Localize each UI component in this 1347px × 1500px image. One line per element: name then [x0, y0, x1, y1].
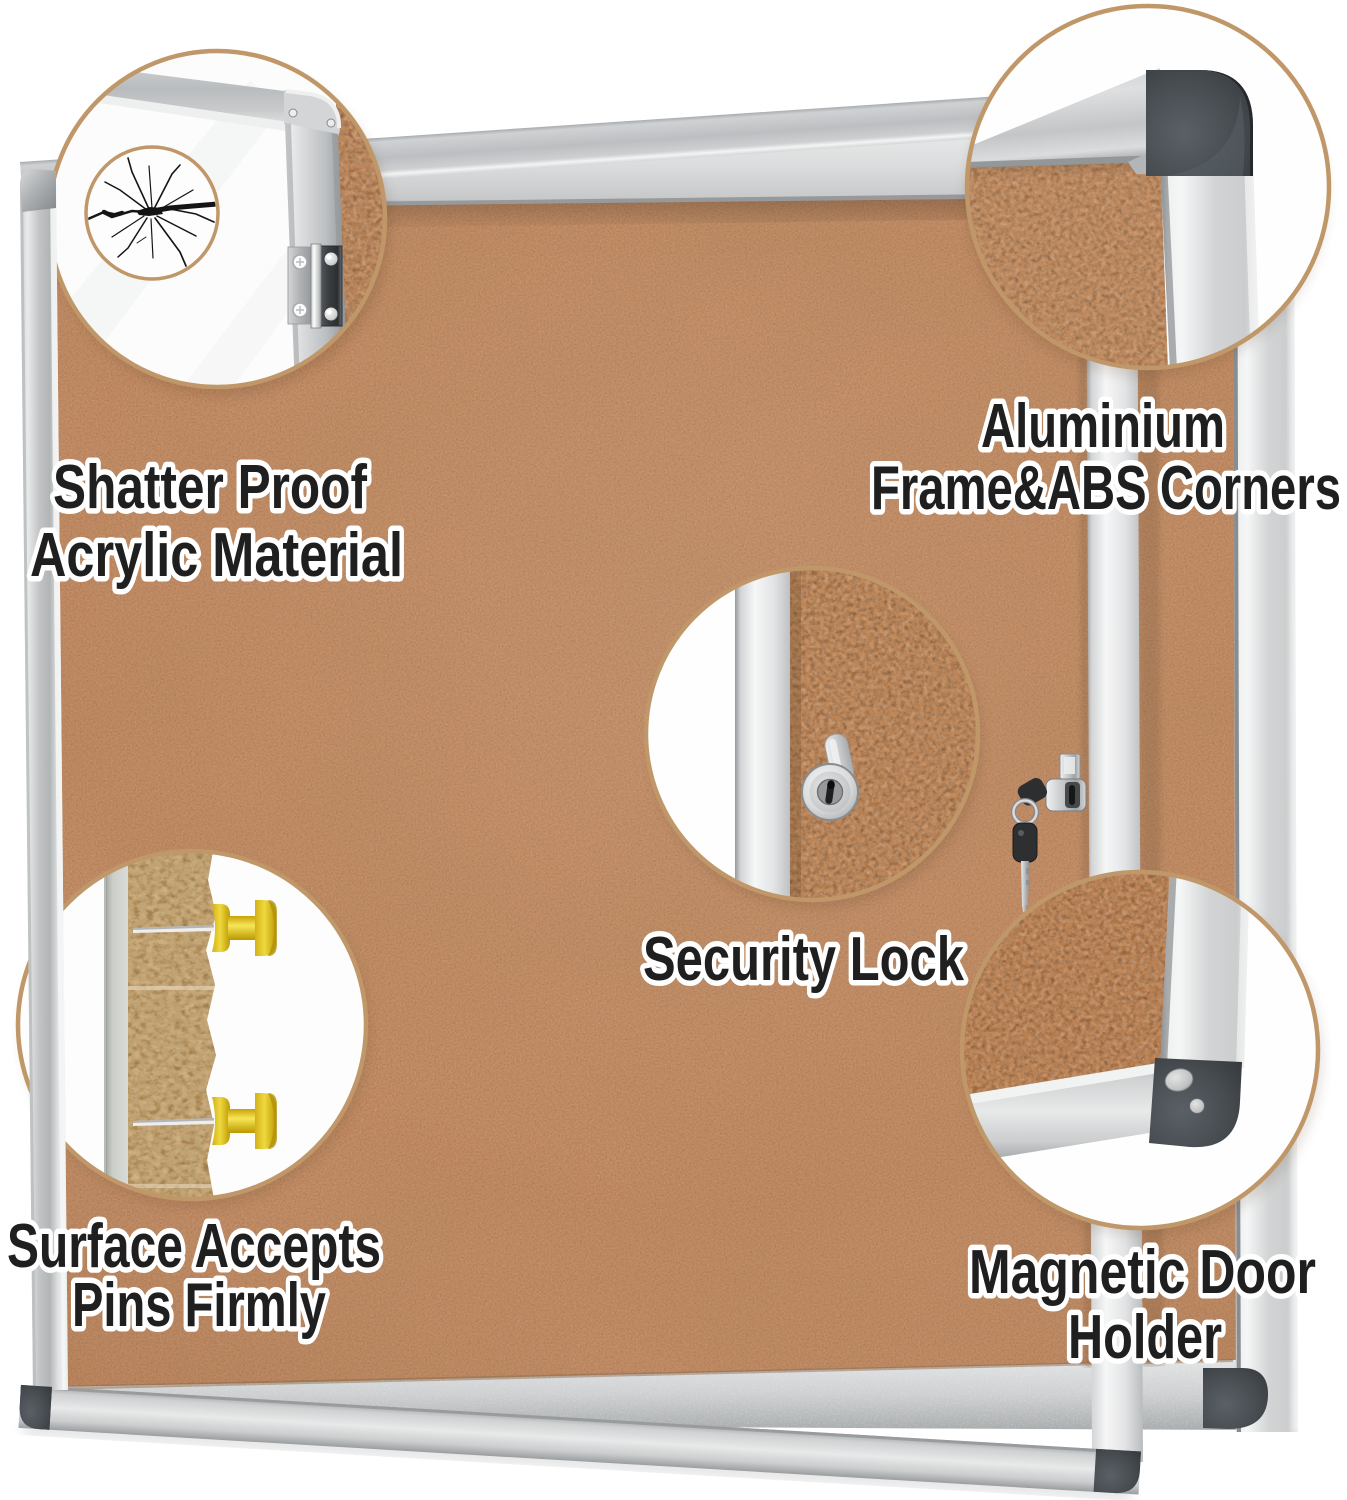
svg-text:Pins Firmly: Pins Firmly [72, 1271, 326, 1340]
svg-text:Magnetic Door: Magnetic Door [969, 1238, 1316, 1307]
svg-text:Holder: Holder [1068, 1303, 1222, 1372]
svg-text:Frame&ABS Corners: Frame&ABS Corners [871, 454, 1341, 523]
svg-text:Security Lock: Security Lock [643, 925, 964, 994]
svg-text:Aluminium: Aluminium [981, 392, 1225, 461]
svg-text:Acrylic Material: Acrylic Material [30, 521, 403, 590]
svg-text:Shatter Proof: Shatter Proof [53, 453, 367, 522]
